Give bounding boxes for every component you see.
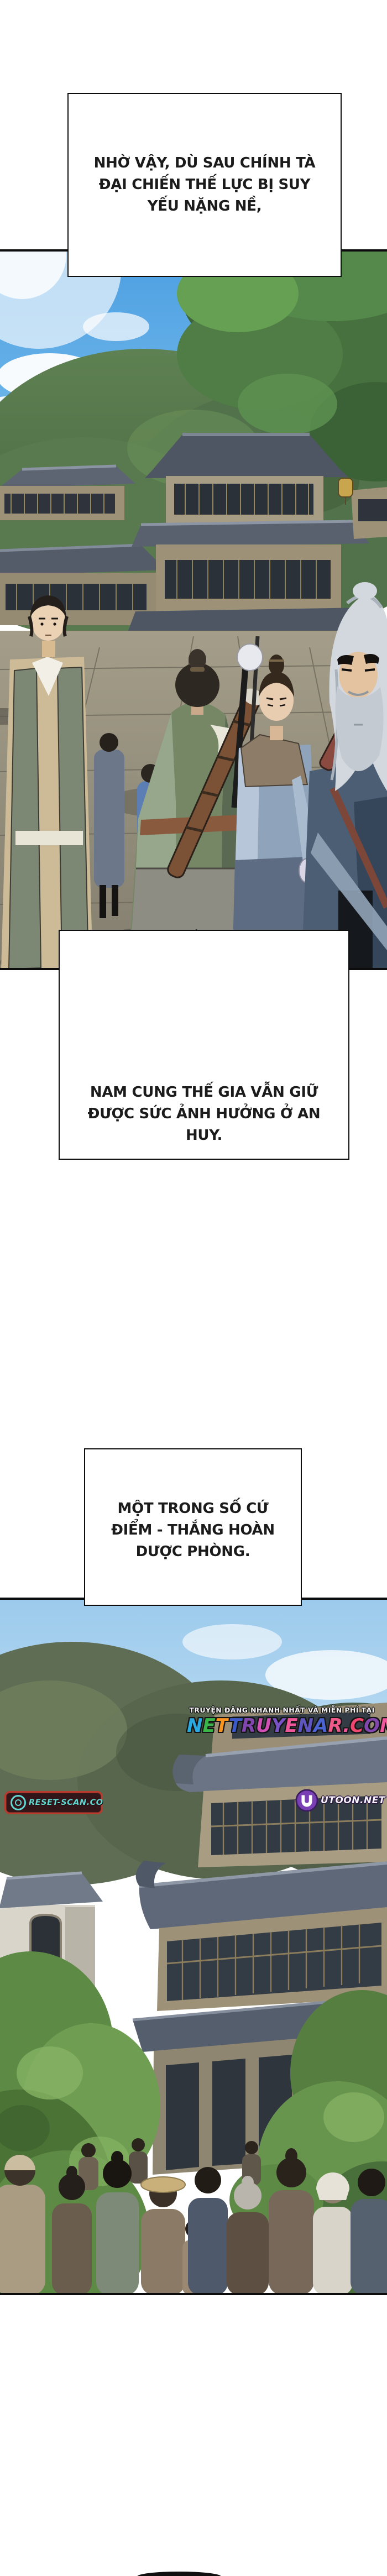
panel-1-illustration [0, 249, 387, 970]
reset-scan-label: RESET-SCAN.CO [29, 1798, 103, 1807]
comic-page: NHỜ VẬY, DÙ SAU CHÍNH TÀ ĐẠI CHIẾN THẾ L… [0, 0, 387, 2576]
utoon-label: UTOON.NET [321, 1795, 385, 1806]
narration-line: NAM CUNG THẾ GIA VẪN GIỮ [60, 1082, 348, 1103]
narration-box-2: NAM CUNG THẾ GIA VẪN GIỮ ĐƯỢC SỨC ẢNH HƯ… [59, 930, 349, 1160]
target-icon [11, 1795, 26, 1810]
narration-line: MỘT TRONG SỐ CỨ [85, 1498, 301, 1520]
utoon-u-icon [295, 1789, 318, 1812]
narration-box-1: NHỜ VẬY, DÙ SAU CHÍNH TÀ ĐẠI CHIẾN THẾ L… [67, 93, 342, 277]
panel2-bottom-border [0, 2293, 387, 2295]
narration-line: YẾU NẶNG NỀ, [69, 196, 341, 217]
reset-scan-badge: RESET-SCAN.CO [4, 1791, 103, 1814]
narration-box-3: MỘT TRONG SỐ CỨ ĐIỂM - THẮNG HOÀN DƯỢC P… [84, 1448, 302, 1606]
narration-line: ĐƯỢC SỨC ẢNH HƯỞNG Ở AN [60, 1103, 348, 1125]
narration-line: DƯỢC PHÒNG. [85, 1541, 301, 1563]
narration-line: NHỜ VẬY, DÙ SAU CHÍNH TÀ [69, 153, 341, 174]
nettruyenar-wordmark: NETTRUYENAR.COM [187, 1713, 377, 1739]
panel-2-illustration [0, 1598, 387, 2295]
utoon-logo: UTOON.NET [295, 1789, 387, 1812]
narration-line: ĐẠI CHIẾN THẾ LỰC BỊ SUY [69, 174, 341, 196]
next-panel-edge [137, 2572, 221, 2576]
narration-line: HUY. [60, 1125, 348, 1146]
narration-line: ĐIỂM - THẮNG HOÀN [85, 1520, 301, 1541]
